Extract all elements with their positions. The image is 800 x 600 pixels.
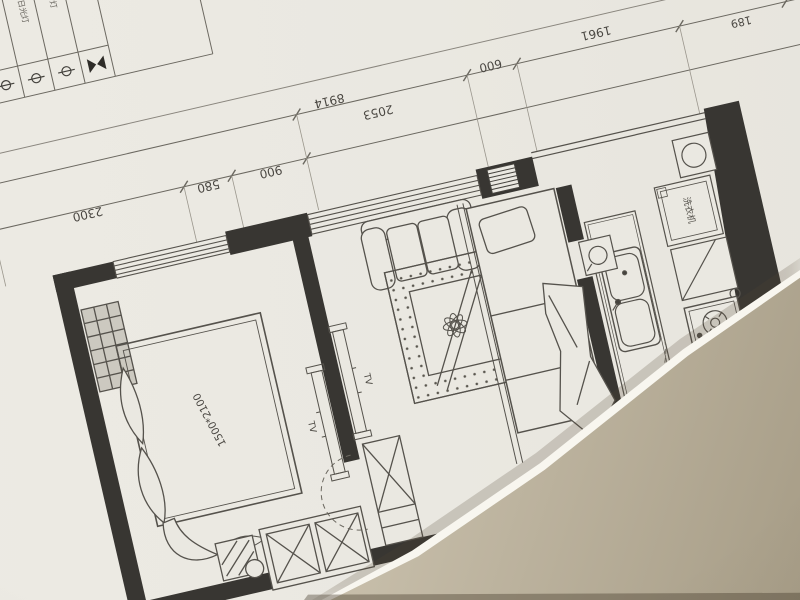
window-master [113, 236, 230, 279]
dim-2300: 2300 [71, 204, 104, 225]
ceiling-lamp-icon [0, 79, 15, 92]
dim-900: 900 [258, 162, 283, 181]
legend-item-label: 防水吸顶灯 [0, 0, 1, 31]
dim-8914: 8914 [313, 91, 346, 112]
counter-end-box [718, 440, 740, 464]
nightstand-with-lamp [215, 534, 265, 584]
water-heater [672, 132, 717, 177]
range-hood [671, 237, 738, 300]
ceiling-lamp-icon [57, 65, 76, 78]
legend-table [0, 0, 213, 111]
bed-size-label: 1500*2100 [191, 391, 229, 448]
dim-2053: 2053 [362, 102, 395, 123]
ceiling-lamp-icon [27, 72, 46, 85]
photo-of-floorplan: 单头吸顶灯 防水吸顶灯 双管日光灯 格栅射灯 排气扇 [0, 0, 800, 600]
paper-sheet-rotated: 单头吸顶灯 防水吸顶灯 双管日光灯 格栅射灯 排气扇 [0, 0, 800, 600]
floorplan-drawing: 单头吸顶灯 防水吸顶灯 双管日光灯 格栅射灯 排气扇 [0, 0, 800, 600]
exhaust-fan-icon [87, 55, 107, 72]
legend-item-label: 双管日光灯 [12, 0, 31, 24]
niche-fixture [579, 235, 618, 275]
tv-label-master: TV [305, 419, 318, 434]
bed-drape [132, 446, 170, 527]
dim-1961: 1961 [580, 23, 613, 44]
dim-600: 600 [478, 56, 503, 75]
dim-189: 189 [729, 13, 752, 30]
wall-top-corner [53, 262, 117, 293]
tv-label-living: TV [361, 372, 374, 387]
shoe-cabinet-x [362, 436, 422, 546]
legend-item-label: 格栅射灯 [42, 0, 59, 9]
wardrobe-x-doors [259, 506, 374, 590]
legend-labels: 单头吸顶灯 防水吸顶灯 双管日光灯 格栅射灯 排气扇 [0, 0, 91, 38]
dim-580: 580 [196, 177, 221, 196]
legend-symbols [0, 55, 107, 100]
